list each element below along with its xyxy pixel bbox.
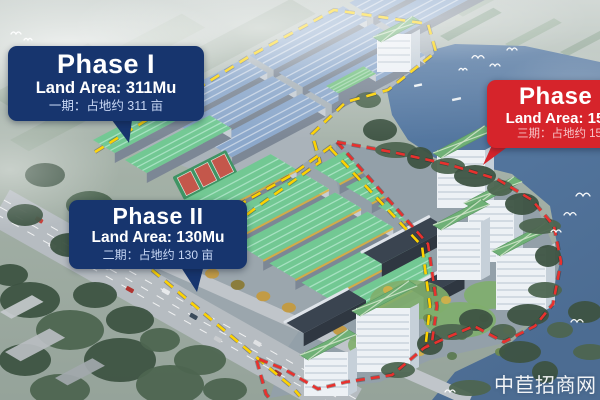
phase1-title: Phase I [12, 50, 200, 79]
phase2-callout: Phase II Land Area: 130Mu 二期：占地约 130 亩 [69, 200, 247, 269]
phase1-cn-caption: 一期：占地约 311 亩 [12, 98, 200, 115]
phase3-title: Phase III [491, 84, 600, 110]
phase3-land-area: Land Area: 153Mu [491, 110, 600, 127]
phase2-title: Phase II [73, 204, 243, 229]
phase2-cn-caption: 二期：占地约 130 亩 [73, 247, 243, 263]
phase2-land-area: Land Area: 130Mu [73, 229, 243, 247]
phase3-callout: Phase III Land Area: 153Mu 三期：占地约 153 亩 [487, 80, 600, 148]
phase3-cn-caption: 三期：占地约 153 亩 [491, 127, 600, 142]
industrial-park-aerial-view: Phase I Land Area: 311Mu 一期：占地约 311 亩 Ph… [0, 0, 600, 400]
phase1-land-area: Land Area: 311Mu [12, 79, 200, 98]
watermark: 中苣招商网 [494, 369, 597, 398]
phase1-callout: Phase I Land Area: 311Mu 一期：占地约 311 亩 [8, 46, 204, 121]
